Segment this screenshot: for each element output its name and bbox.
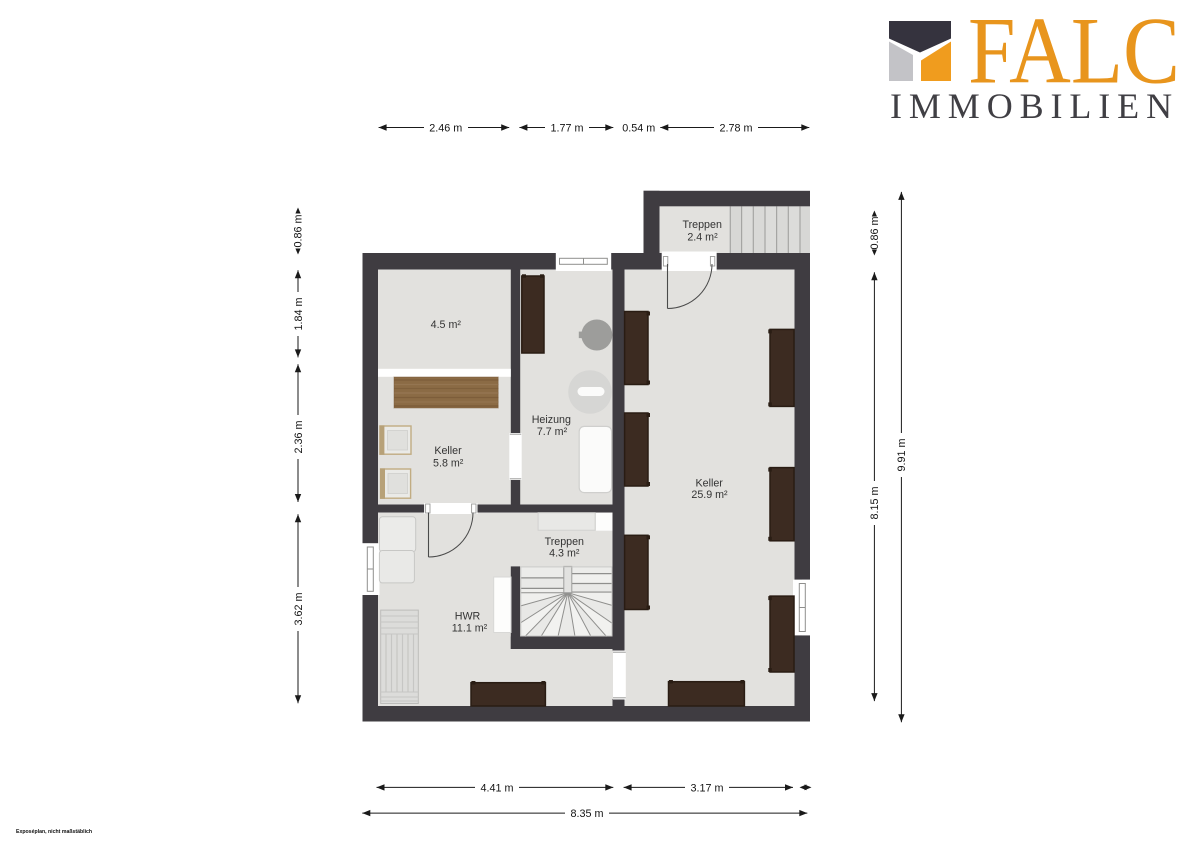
svg-text:1.77 m: 1.77 m — [550, 123, 583, 135]
svg-text:Keller: Keller — [434, 445, 462, 457]
svg-text:8.35 m: 8.35 m — [570, 808, 603, 820]
svg-text:Heizung: Heizung — [532, 414, 571, 426]
svg-text:0.54 m: 0.54 m — [622, 123, 655, 135]
svg-text:0.86 m: 0.86 m — [869, 216, 881, 249]
svg-text:4.41 m: 4.41 m — [480, 782, 513, 794]
svg-text:Keller: Keller — [696, 478, 724, 490]
svg-text:2.36 m: 2.36 m — [293, 420, 305, 453]
svg-text:4.3 m²: 4.3 m² — [549, 548, 580, 560]
svg-text:3.62 m: 3.62 m — [293, 592, 305, 625]
svg-text:2.78 m: 2.78 m — [719, 123, 752, 135]
svg-text:5.8 m²: 5.8 m² — [433, 458, 464, 470]
svg-text:Exposéplan, nicht maßstäblich: Exposéplan, nicht maßstäblich — [16, 829, 92, 835]
svg-text:IMMOBILIEN: IMMOBILIEN — [890, 86, 1179, 126]
svg-text:2.46 m: 2.46 m — [429, 123, 462, 135]
svg-text:7.7 m²: 7.7 m² — [537, 426, 568, 438]
svg-text:2.4 m²: 2.4 m² — [687, 231, 718, 243]
svg-text:HWR: HWR — [455, 611, 481, 623]
svg-text:25.9 m²: 25.9 m² — [691, 489, 728, 501]
svg-text:4.5 m²: 4.5 m² — [431, 319, 462, 331]
svg-text:3.17 m: 3.17 m — [690, 782, 723, 794]
svg-text:9.91 m: 9.91 m — [896, 438, 908, 471]
svg-text:1.84 m: 1.84 m — [293, 297, 305, 330]
svg-text:11.1 m²: 11.1 m² — [452, 623, 488, 635]
svg-text:0.86 m: 0.86 m — [293, 214, 305, 247]
svg-text:Treppen: Treppen — [545, 536, 584, 548]
svg-text:Treppen: Treppen — [682, 219, 721, 231]
svg-text:8.15 m: 8.15 m — [869, 486, 881, 519]
